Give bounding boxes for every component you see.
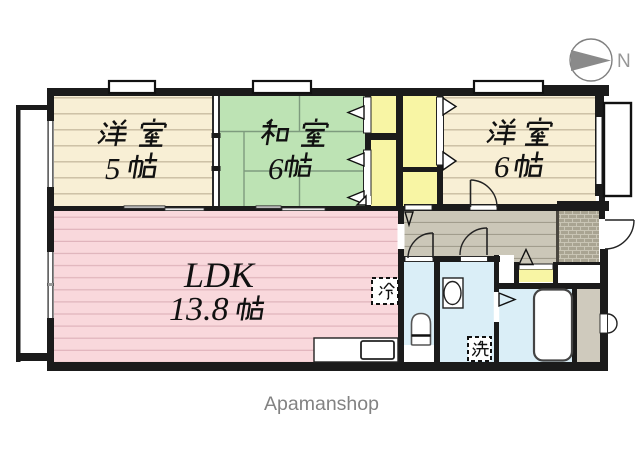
- svg-text:6: 6: [494, 149, 510, 184]
- svg-text:LDK: LDK: [183, 255, 256, 295]
- svg-text:13.8: 13.8: [169, 291, 229, 328]
- svg-text:N: N: [617, 51, 631, 72]
- svg-text:6: 6: [268, 151, 284, 186]
- svg-text:5: 5: [105, 151, 121, 186]
- svg-text:Apamanshop: Apamanshop: [264, 393, 379, 415]
